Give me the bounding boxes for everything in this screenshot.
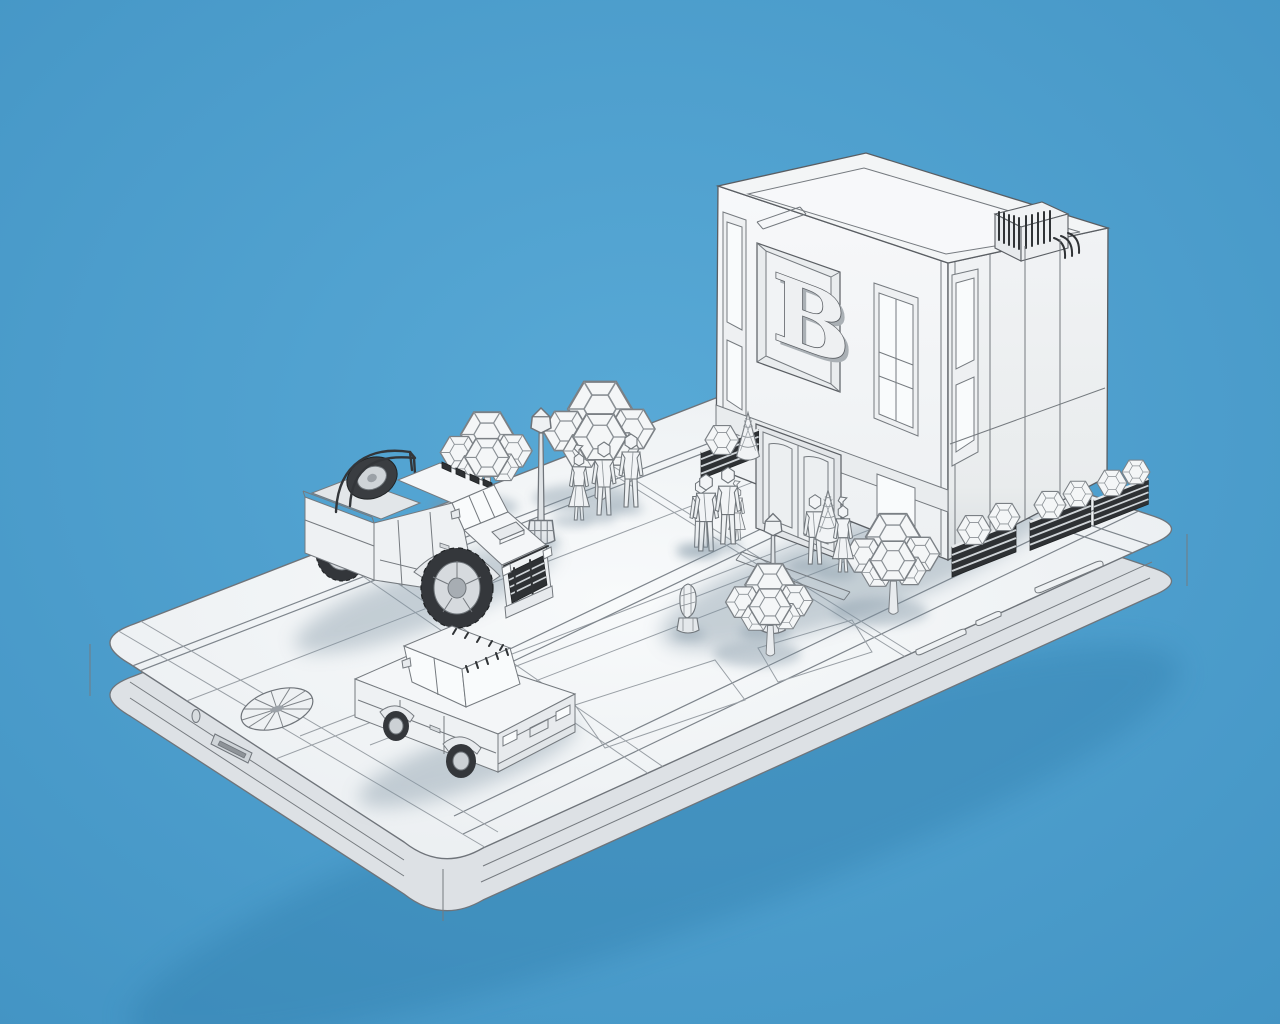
right-face-windows — [952, 269, 978, 466]
window-column-right — [874, 283, 918, 436]
wireframe-city-phone-illustration: Low-poly 3D wireframe illustration of a … — [0, 0, 1280, 1024]
tree-shadow — [713, 641, 801, 667]
window-column-left — [723, 212, 746, 420]
illustration-stage: Low-poly 3D wireframe illustration of a … — [0, 0, 1280, 1024]
microphone-hole — [192, 710, 200, 723]
tree-shadow — [832, 598, 928, 626]
truck-front-wheel — [421, 548, 493, 628]
